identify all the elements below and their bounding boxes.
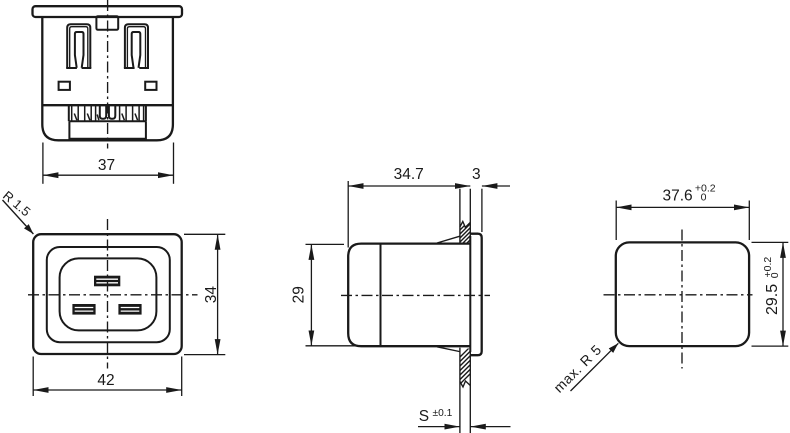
svg-text:0: 0 (701, 191, 707, 203)
svg-text:±0.1: ±0.1 (433, 408, 453, 419)
svg-text:42: 42 (97, 372, 114, 389)
svg-text:37: 37 (98, 157, 115, 174)
svg-text:34.7: 34.7 (394, 166, 424, 183)
svg-text:3: 3 (472, 166, 481, 183)
svg-text:34: 34 (203, 286, 220, 304)
svg-text:37.6: 37.6 (663, 187, 693, 204)
svg-text:29: 29 (291, 286, 308, 303)
svg-text:0: 0 (769, 272, 781, 278)
svg-text:29.5: 29.5 (764, 284, 781, 315)
svg-text:S: S (419, 408, 429, 425)
